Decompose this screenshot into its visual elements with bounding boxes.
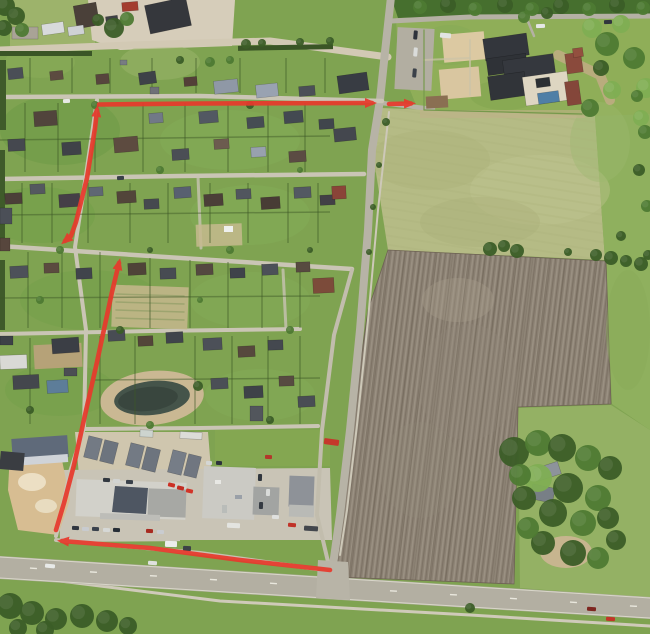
lawn-mottle bbox=[190, 272, 310, 328]
house bbox=[34, 110, 58, 127]
house bbox=[52, 337, 80, 354]
vehicle bbox=[82, 527, 89, 531]
tree-highlight bbox=[632, 91, 639, 98]
tree-highlight bbox=[511, 466, 523, 478]
tree-highlight bbox=[197, 297, 200, 300]
left-edge-hedge bbox=[0, 150, 5, 240]
tree-highlight bbox=[157, 167, 161, 171]
tree-highlight bbox=[383, 119, 387, 123]
house bbox=[238, 346, 256, 358]
vehicle bbox=[413, 47, 418, 56]
house bbox=[261, 196, 281, 209]
tree-highlight bbox=[147, 422, 151, 426]
vehicle bbox=[265, 455, 272, 459]
dealership-wing bbox=[148, 488, 187, 517]
house bbox=[76, 268, 93, 280]
tree-highlight bbox=[621, 256, 628, 263]
tree-highlight bbox=[267, 417, 271, 421]
tree-highlight bbox=[242, 40, 248, 46]
dealership-showroom bbox=[112, 486, 148, 514]
tree-highlight bbox=[499, 241, 506, 248]
tree-highlight bbox=[484, 243, 492, 251]
tree-highlight bbox=[22, 603, 35, 616]
tree-highlight bbox=[121, 13, 129, 21]
tree-highlight bbox=[366, 249, 369, 252]
house bbox=[0, 238, 10, 251]
tree-highlight bbox=[577, 447, 591, 461]
vehicle bbox=[440, 33, 451, 39]
school-building bbox=[488, 72, 528, 101]
vehicle bbox=[126, 480, 133, 484]
vehicle bbox=[587, 607, 596, 612]
tree-highlight bbox=[562, 542, 576, 556]
vehicle bbox=[304, 526, 318, 532]
tree-highlight bbox=[638, 80, 649, 91]
vehicle bbox=[413, 30, 418, 39]
tree-highlight bbox=[519, 12, 526, 19]
warehouse-roof bbox=[202, 466, 256, 520]
tree-highlight bbox=[604, 82, 614, 92]
tree-highlight bbox=[469, 3, 477, 11]
tree-highlight bbox=[644, 251, 650, 257]
tree-highlight bbox=[635, 258, 643, 266]
house bbox=[299, 85, 316, 96]
house bbox=[113, 136, 138, 153]
lawn-mottle bbox=[160, 110, 300, 170]
tree-highlight bbox=[287, 327, 291, 331]
house bbox=[213, 79, 238, 94]
house bbox=[138, 336, 154, 347]
vehicle bbox=[288, 523, 296, 528]
vehicle bbox=[113, 528, 120, 532]
tree-highlight bbox=[414, 1, 422, 9]
vehicle bbox=[272, 515, 279, 519]
house bbox=[120, 60, 127, 65]
house bbox=[62, 141, 82, 155]
left-edge-hedge bbox=[0, 60, 6, 130]
house bbox=[5, 193, 23, 205]
route-school-entry bbox=[389, 104, 411, 105]
house bbox=[149, 113, 164, 124]
vehicle bbox=[536, 24, 545, 28]
tree-highlight bbox=[259, 40, 263, 44]
rooftop-unit bbox=[215, 480, 221, 484]
tree-highlight bbox=[582, 100, 592, 110]
house bbox=[172, 148, 190, 160]
tree-highlight bbox=[57, 247, 61, 251]
tree-highlight bbox=[594, 61, 603, 70]
tree-highlight bbox=[527, 432, 541, 446]
tree-highlight bbox=[587, 487, 601, 501]
house bbox=[268, 340, 283, 351]
vehicle bbox=[113, 479, 120, 483]
tree-highlight bbox=[106, 20, 117, 31]
tree-highlight bbox=[147, 247, 150, 250]
tree-highlight bbox=[92, 102, 96, 106]
house bbox=[247, 116, 265, 128]
vehicle bbox=[606, 617, 615, 622]
tree-highlight bbox=[555, 475, 572, 492]
tree-highlight bbox=[613, 16, 623, 26]
dark-shed bbox=[0, 451, 25, 471]
tree-highlight bbox=[599, 509, 611, 521]
garden-plot-north bbox=[196, 223, 243, 247]
highway-intersection bbox=[316, 560, 350, 600]
house bbox=[30, 184, 46, 195]
tree-highlight bbox=[608, 532, 619, 543]
tree-highlight bbox=[47, 610, 59, 622]
tree-highlight bbox=[541, 501, 556, 516]
tree-highlight bbox=[98, 612, 110, 624]
tree-highlight bbox=[526, 3, 534, 11]
vehicle bbox=[259, 502, 263, 509]
house bbox=[59, 193, 81, 207]
tree-highlight bbox=[8, 8, 18, 18]
house bbox=[294, 187, 312, 199]
tree-highlight bbox=[519, 519, 531, 531]
house bbox=[117, 190, 137, 203]
house bbox=[7, 67, 23, 80]
greenhouse bbox=[224, 226, 233, 232]
tree-highlight bbox=[605, 252, 613, 260]
school-garden-plot bbox=[426, 95, 449, 108]
street-h5 bbox=[84, 426, 318, 429]
house bbox=[160, 268, 176, 280]
house bbox=[333, 127, 356, 142]
house bbox=[332, 186, 347, 200]
tree-highlight bbox=[634, 111, 643, 120]
school-building bbox=[535, 77, 550, 88]
tree-highlight bbox=[327, 38, 331, 42]
tree-highlight bbox=[617, 232, 623, 238]
house bbox=[144, 199, 160, 210]
sand-bright-spot bbox=[18, 473, 46, 491]
rooftop-unit bbox=[222, 505, 227, 513]
school-building bbox=[564, 80, 581, 106]
vehicle bbox=[103, 528, 110, 532]
street-h4 bbox=[0, 329, 300, 334]
tree-highlight bbox=[550, 436, 565, 451]
tree-highlight bbox=[376, 162, 379, 165]
vehicle bbox=[63, 99, 70, 103]
tree-highlight bbox=[572, 512, 586, 526]
tree-highlight bbox=[600, 458, 613, 471]
farm-building bbox=[67, 25, 84, 36]
house bbox=[10, 266, 29, 279]
tree-highlight bbox=[634, 165, 641, 172]
house bbox=[138, 71, 157, 85]
tree-highlight bbox=[10, 620, 20, 630]
rooftop-unit bbox=[235, 495, 242, 499]
vehicle bbox=[146, 529, 153, 533]
tree-highlight bbox=[584, 20, 595, 31]
house bbox=[204, 193, 224, 206]
house bbox=[13, 374, 40, 389]
house bbox=[0, 208, 12, 224]
vehicle bbox=[157, 530, 164, 534]
house bbox=[47, 379, 69, 393]
tree-highlight bbox=[93, 15, 100, 22]
tree-highlight bbox=[639, 126, 647, 134]
vehicle bbox=[227, 523, 240, 529]
tree-highlight bbox=[37, 297, 41, 301]
tree-highlight bbox=[120, 618, 130, 628]
vehicle bbox=[117, 176, 124, 180]
map-canvas[interactable] bbox=[0, 0, 650, 634]
house bbox=[250, 406, 263, 421]
warehouse-wing bbox=[253, 487, 280, 516]
vehicle bbox=[266, 489, 270, 496]
house bbox=[313, 277, 335, 293]
tree-highlight bbox=[117, 327, 121, 331]
house bbox=[184, 76, 198, 86]
tree-highlight bbox=[206, 58, 212, 64]
house bbox=[244, 386, 264, 399]
aerial-map-view[interactable] bbox=[0, 0, 650, 634]
tree-highlight bbox=[72, 606, 85, 619]
sand-bright-spot bbox=[35, 499, 57, 513]
tree-highlight bbox=[227, 247, 231, 251]
house bbox=[279, 376, 294, 387]
vehicle bbox=[216, 461, 222, 465]
tree-highlight bbox=[37, 622, 47, 632]
house bbox=[214, 138, 230, 149]
house bbox=[50, 70, 64, 80]
house bbox=[150, 87, 159, 94]
house bbox=[199, 110, 219, 124]
house bbox=[64, 368, 77, 376]
tree-highlight bbox=[642, 201, 649, 208]
tree-highlight bbox=[466, 604, 472, 610]
house bbox=[211, 378, 229, 390]
lawn-mottle bbox=[120, 44, 200, 80]
house bbox=[255, 83, 278, 98]
tree-highlight bbox=[597, 34, 610, 47]
tree-highlight bbox=[589, 549, 601, 561]
tree-highlight bbox=[297, 39, 301, 43]
hedge-strip bbox=[0, 51, 92, 56]
house bbox=[289, 150, 307, 162]
vehicle bbox=[258, 474, 262, 481]
storage-unit bbox=[180, 431, 202, 439]
tree-highlight bbox=[511, 245, 519, 253]
house bbox=[0, 336, 13, 345]
house bbox=[89, 187, 103, 197]
left-edge-hedge bbox=[0, 260, 5, 330]
vehicle bbox=[604, 20, 612, 24]
house bbox=[236, 189, 252, 200]
tree-highlight bbox=[637, 2, 645, 10]
tree-highlight bbox=[501, 439, 518, 456]
house bbox=[337, 72, 369, 94]
vehicle bbox=[165, 541, 177, 547]
tree-highlight bbox=[625, 49, 637, 61]
vehicle bbox=[72, 526, 79, 530]
house bbox=[166, 332, 184, 344]
small-office bbox=[288, 476, 314, 508]
house bbox=[284, 110, 304, 124]
tree-highlight bbox=[565, 249, 569, 253]
tree-highlight bbox=[16, 24, 24, 32]
farm-building bbox=[122, 1, 139, 11]
house bbox=[298, 396, 316, 408]
vehicle bbox=[92, 527, 99, 531]
tree-highlight bbox=[583, 3, 591, 11]
tree-highlight bbox=[297, 167, 300, 170]
commercial-grass-east bbox=[215, 430, 330, 466]
route-top-street-east bbox=[99, 103, 372, 105]
tree-highlight bbox=[370, 204, 373, 207]
house bbox=[262, 264, 279, 276]
vehicle bbox=[103, 478, 110, 482]
vehicle bbox=[206, 461, 212, 465]
school-sand-play-area bbox=[439, 66, 481, 99]
house bbox=[174, 186, 192, 198]
tree-highlight bbox=[591, 250, 598, 257]
house bbox=[8, 139, 26, 152]
house bbox=[230, 268, 245, 279]
street-h2 bbox=[0, 174, 364, 179]
school-building bbox=[572, 47, 583, 57]
tree-highlight bbox=[27, 407, 31, 411]
house bbox=[251, 147, 267, 158]
house bbox=[296, 262, 310, 272]
tree-highlight bbox=[307, 247, 310, 250]
house bbox=[96, 73, 110, 84]
small-office-low bbox=[289, 505, 314, 518]
house bbox=[196, 264, 214, 276]
house bbox=[0, 355, 27, 370]
storage-unit bbox=[140, 430, 153, 437]
tree-highlight bbox=[542, 8, 549, 15]
tree-highlight bbox=[227, 57, 231, 61]
house bbox=[319, 118, 335, 129]
tree-highlight bbox=[194, 382, 200, 388]
tree-highlight bbox=[177, 57, 181, 61]
vehicle bbox=[412, 68, 417, 77]
house bbox=[128, 263, 147, 276]
meadow-stripe-overlay bbox=[374, 108, 605, 260]
vehicle bbox=[148, 561, 157, 566]
house bbox=[44, 263, 59, 274]
house bbox=[203, 338, 223, 351]
lawn-mottle bbox=[606, 270, 650, 390]
tree-highlight bbox=[514, 488, 527, 501]
